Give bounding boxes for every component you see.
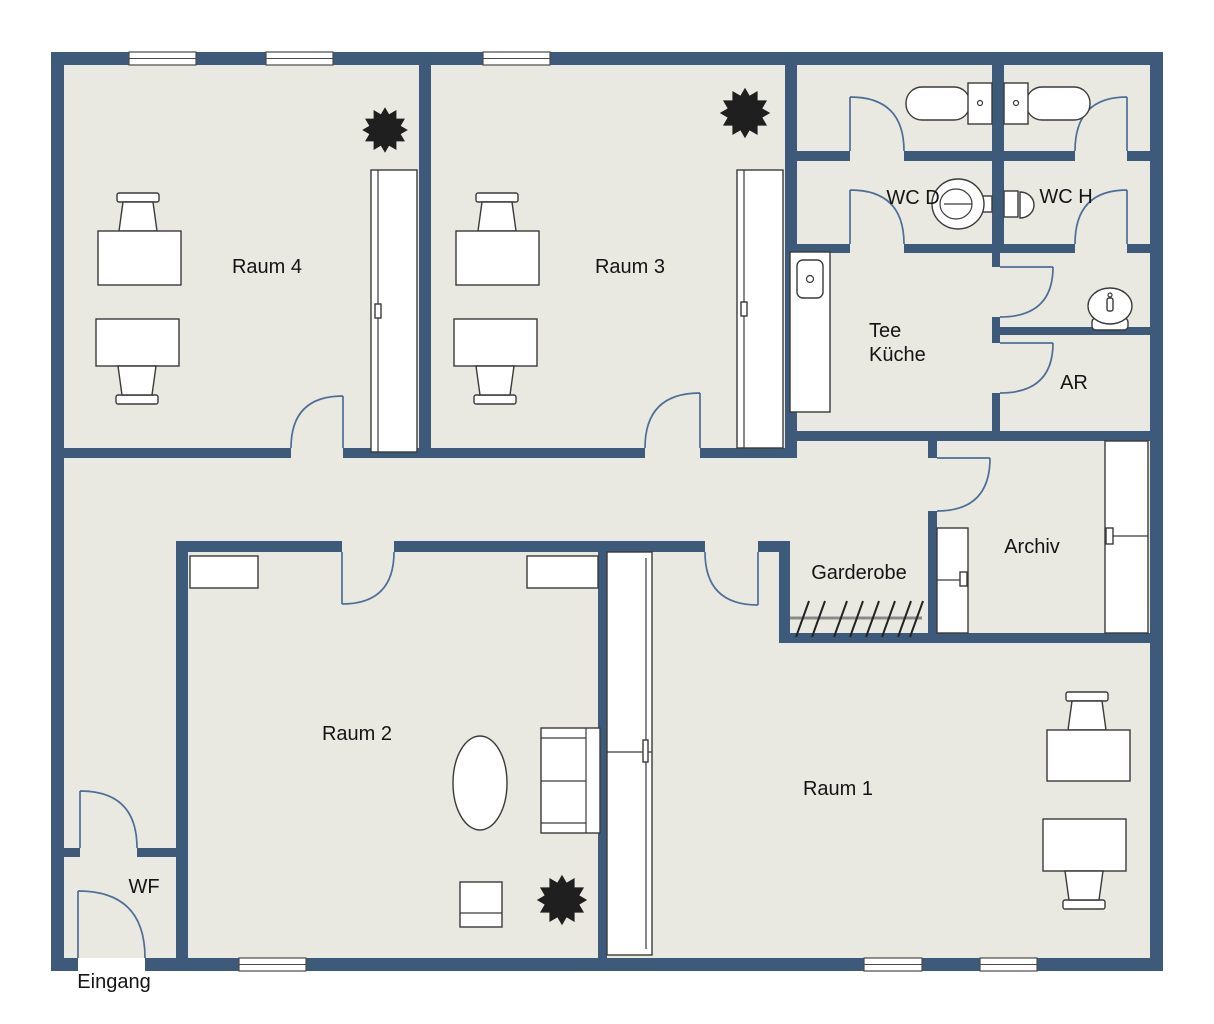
room-label-raum2: Raum 2 [322,723,392,745]
floor-plan: Raum 4 Raum 3 WC D WC H Tee Küche AR Arc… [0,0,1214,1024]
room-label-wc-h: WC H [1039,186,1092,208]
oval-table [453,736,507,830]
office-chair-icon [476,193,518,231]
room-label-archiv: Archiv [1004,536,1060,558]
room-label-raum1: Raum 1 [803,778,873,800]
room-label-teekueche-line1: Tee [869,320,901,342]
side-table [460,882,502,927]
room-label-wc-d: WC D [886,187,939,209]
room-label-eingang: Eingang [77,971,150,993]
kitchen-counter [790,252,830,412]
archive-cabinet [937,528,968,633]
room-label-raum4: Raum 4 [232,256,302,278]
room-label-teekueche-line2: Küche [869,344,926,366]
entrance-opening [78,958,145,971]
wall-right [1150,52,1163,971]
window [266,52,333,65]
window [129,52,196,65]
office-chair-icon [474,366,516,404]
wardrobe-cabinet [371,170,417,452]
room-label-ar: AR [1060,372,1088,394]
window [483,52,550,65]
office-chair-icon [116,366,158,404]
window [980,958,1037,971]
wardrobe-cabinet [737,170,783,448]
toilet-icon [1004,83,1090,124]
room-label-raum3: Raum 3 [595,256,665,278]
office-chair-icon [117,193,159,231]
office-chair-icon [1066,692,1108,730]
archive-cabinet [1105,441,1148,633]
sideboard [190,556,258,588]
office-chair-icon [1063,871,1105,909]
wardrobe-cabinet [607,552,652,955]
window [239,958,306,971]
kitchen-sink-icon [797,260,823,298]
room-label-garderobe: Garderobe [811,562,907,584]
window [864,958,922,971]
sideboard [527,556,598,588]
wall-left [51,52,64,971]
room-label-wf: WF [128,876,159,898]
wall-top [51,52,1163,65]
pedestal-sink-icon [1088,288,1132,330]
sofa [541,728,600,833]
toilet-icon [906,83,992,124]
